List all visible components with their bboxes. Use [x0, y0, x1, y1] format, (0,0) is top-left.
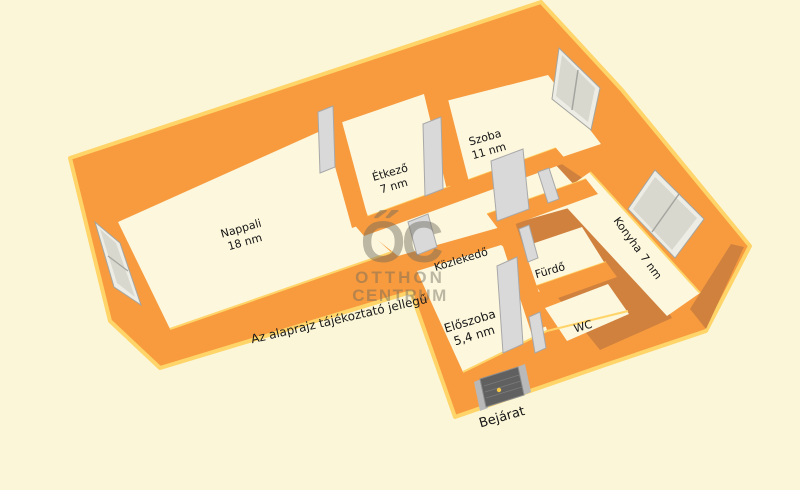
watermark-logo: ŐC [361, 210, 443, 275]
door-szoba-corridor [491, 149, 529, 221]
floorplan-image: ŐC OTTHON CENTRUM Nappali 18 nm Étkező 7… [0, 0, 800, 490]
door-etkezo-szoba [423, 117, 443, 196]
door-nappali [318, 106, 335, 173]
watermark: ŐC OTTHON CENTRUM [352, 210, 448, 305]
watermark-line1: OTTHON [355, 268, 445, 287]
entrance-doorknob [497, 388, 501, 392]
